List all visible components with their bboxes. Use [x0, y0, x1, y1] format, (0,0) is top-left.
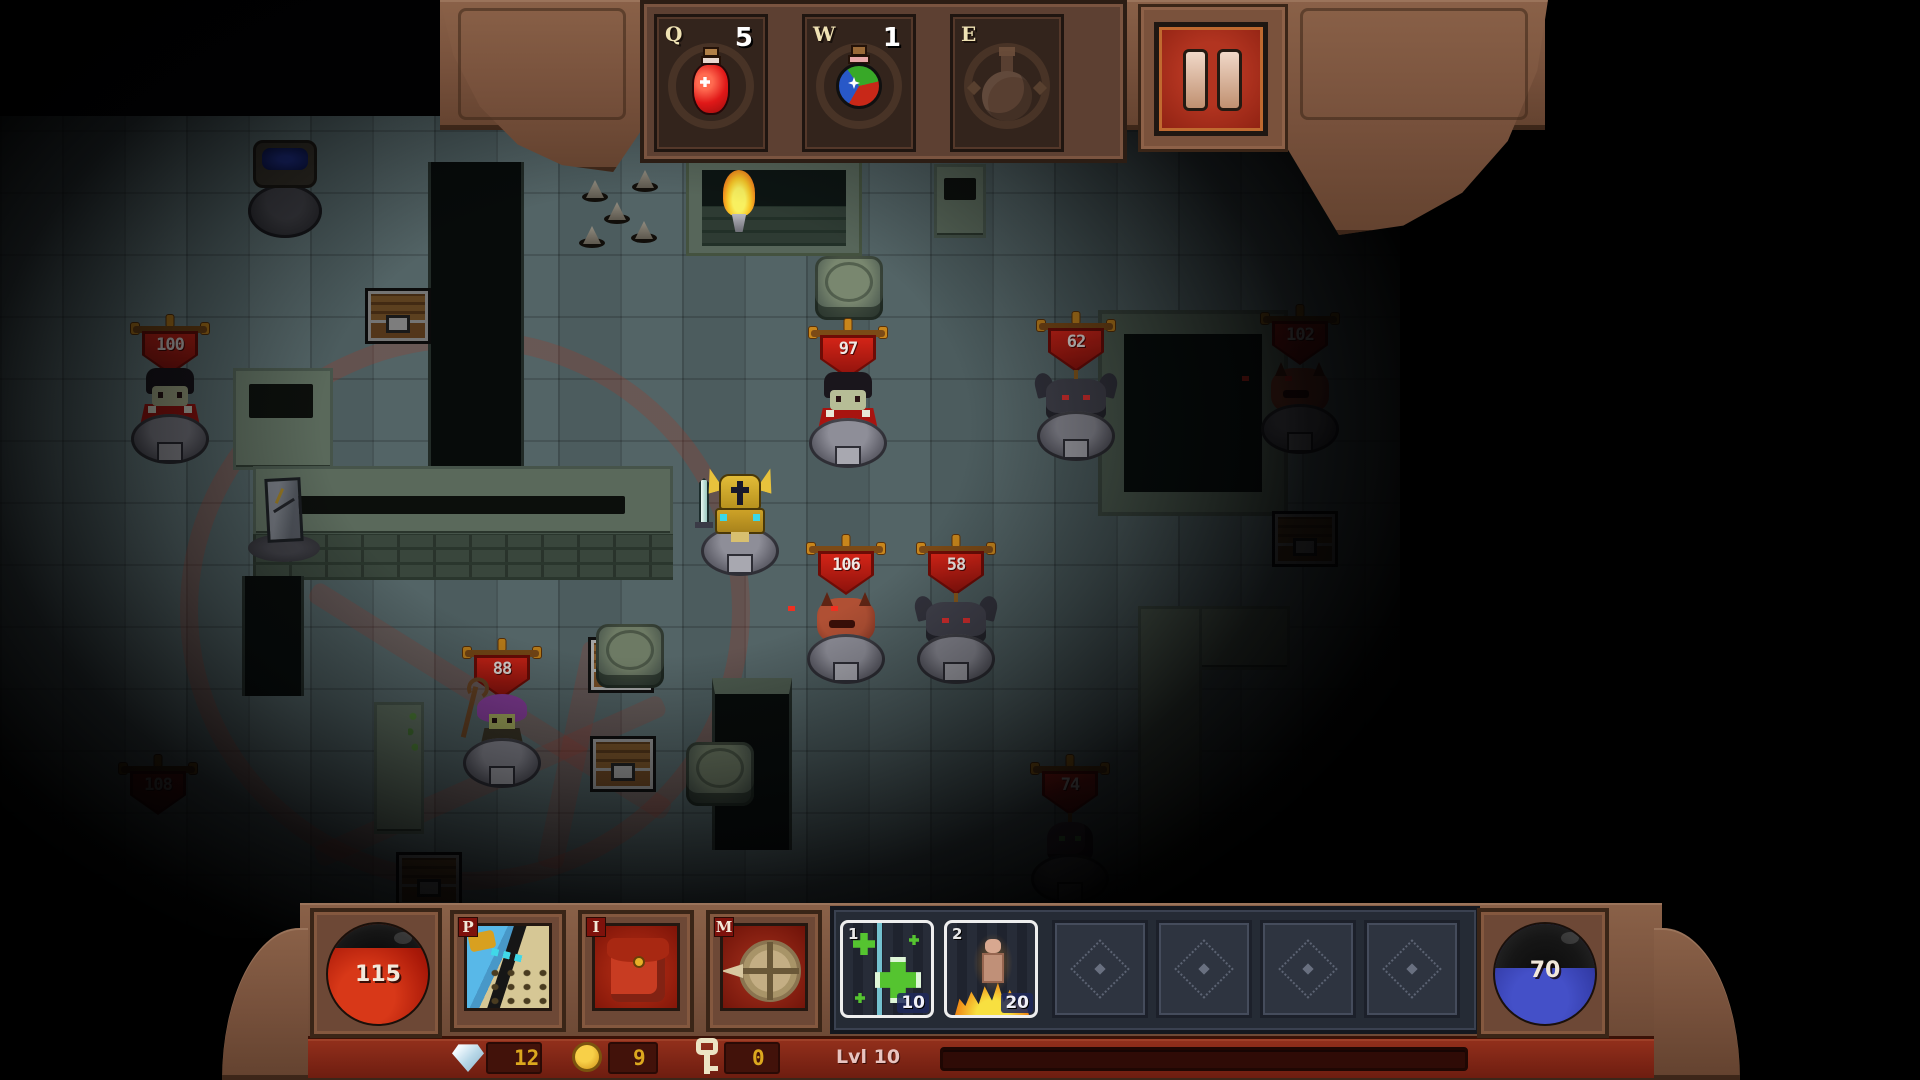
enemy-hp-value: 100 [142, 335, 198, 355]
potion-slot-q[interactable]: Q 5 [654, 14, 768, 152]
enemy-hp-value: 88 [474, 659, 530, 679]
bottom-bar-left-ornament [222, 928, 308, 1080]
chest[interactable] [1272, 511, 1338, 567]
enemy-hp-value: 102 [1272, 325, 1328, 345]
key-icon [694, 1038, 720, 1076]
potion-slot-w[interactable]: W 1 [802, 14, 916, 152]
wall-bottomright-vert [1138, 606, 1202, 911]
potion-panel: Q 5 W 1 E [640, 0, 1127, 163]
level-label: Lvl 10 [836, 1046, 900, 1068]
skill-cost: 20 [1001, 993, 1033, 1013]
coin-icon [572, 1042, 602, 1072]
enemy-imp[interactable]: 74 [1030, 758, 1110, 908]
enemy-vampire[interactable]: 100 [130, 318, 210, 468]
stone-pillar [596, 624, 664, 688]
coin-count: 9 [633, 1044, 646, 1072]
enemy-hp-value: 58 [928, 555, 984, 575]
potion-count: 5 [735, 23, 753, 53]
player-armor [715, 508, 765, 534]
sword-guard [695, 522, 713, 528]
potion-slot-e[interactable]: E [950, 14, 1064, 152]
skill-slot-empty[interactable] [1260, 920, 1356, 1018]
hotkey-label: Q [665, 22, 682, 46]
player-skirt [731, 532, 749, 542]
player-helmet [719, 474, 761, 510]
hp-banner: 106 [809, 538, 883, 594]
chest[interactable] [590, 736, 656, 792]
hotkey-badge: P [458, 917, 478, 937]
enemy-demon[interactable]: 102 [1260, 308, 1340, 458]
pit-bottom-left [242, 576, 304, 696]
enemy-hp-value: 62 [1048, 332, 1104, 352]
chest[interactable] [365, 288, 431, 344]
enemy-hp-value: 74 [1042, 775, 1098, 795]
hp-banner: 97 [811, 322, 885, 378]
menu-slot-character[interactable]: P [450, 910, 566, 1032]
wall-small-topright [934, 164, 986, 238]
menu-slot-inventory[interactable]: I [578, 910, 694, 1032]
coin-count-plate: 9 [608, 1042, 658, 1074]
hotkey-label: 1 [848, 925, 858, 943]
enemy-demon[interactable]: 106 [806, 538, 886, 688]
health-value: 115 [328, 962, 428, 987]
game-screen: 100 97 62 102 106 58 88 7 [0, 0, 1920, 1080]
tricolor-potion-icon [836, 45, 882, 123]
hp-banner: 58 [919, 538, 993, 594]
enemy-witch[interactable]: 88 [462, 642, 542, 792]
skill-slot-heal[interactable]: 1 10 [840, 920, 934, 1018]
wall-near-witch [374, 702, 424, 834]
player-knight[interactable] [697, 468, 783, 578]
gem-count-plate: 12 [486, 1042, 542, 1074]
hotkey-label: 2 [952, 925, 962, 943]
skill-slot-empty[interactable] [1156, 920, 1252, 1018]
top-bar-carving [1300, 8, 1528, 120]
hp-banner: 74 [1033, 758, 1107, 814]
heal-beam [877, 923, 882, 1015]
top-bar-carving [458, 8, 626, 120]
stone-pillar [686, 742, 754, 806]
gem-count: 12 [514, 1044, 539, 1072]
stone-pillar [815, 256, 883, 320]
skill-slot-empty[interactable] [1364, 920, 1460, 1018]
enemy-vampire[interactable]: 97 [808, 322, 888, 472]
health-potion-icon [692, 47, 730, 123]
heal-sparkle-icon [855, 993, 865, 1003]
spike-trap [631, 219, 657, 243]
key-count: 0 [752, 1044, 765, 1072]
torch-icon [722, 170, 756, 242]
spike-trap [582, 178, 608, 202]
xp-bar [940, 1047, 1468, 1071]
enemy-hidden[interactable]: 108 [118, 758, 198, 908]
spike-trap [579, 224, 605, 248]
enemy-gargoyle[interactable]: 58 [916, 538, 996, 688]
sword-icon [699, 478, 709, 526]
monolith[interactable] [248, 478, 320, 562]
enemy-hp-value: 106 [818, 555, 874, 575]
immolate-skill-icon [982, 953, 1004, 983]
spike-trap [604, 200, 630, 224]
pause-button[interactable] [1154, 22, 1268, 136]
pause-icon [1217, 49, 1242, 111]
potion-count: 1 [883, 23, 901, 53]
key-count-plate: 0 [724, 1042, 780, 1074]
health-orb: 115 [326, 922, 430, 1026]
torch-alcove [686, 158, 862, 256]
heal-sparkle-icon [909, 935, 919, 945]
skill-slot-immolate[interactable]: 2 20 [944, 920, 1038, 1018]
skill-cost: 10 [897, 993, 929, 1013]
hp-banner: 62 [1039, 315, 1113, 371]
hp-banner: 102 [1263, 308, 1337, 364]
spike-trap [632, 168, 658, 192]
enemy-hp-value: 97 [820, 339, 876, 359]
menu-slot-map[interactable]: M [706, 910, 822, 1032]
hotkey-label: W [813, 22, 835, 46]
hp-banner: 100 [133, 318, 207, 374]
mana-orb-panel: 70 [1477, 908, 1609, 1038]
hotkey-badge: M [714, 917, 734, 937]
hp-banner: 108 [121, 758, 195, 814]
hotkey-label: E [961, 22, 976, 46]
health-orb-panel: 115 [310, 908, 442, 1038]
enemy-hp-value: 108 [130, 775, 186, 795]
mana-value: 70 [1495, 958, 1595, 983]
pause-icon [1183, 49, 1208, 111]
immolate-skill-icon [985, 939, 1001, 953]
wall-left-stub [233, 368, 333, 470]
hotkey-badge: I [586, 917, 606, 937]
empty-flask-icon [982, 47, 1032, 131]
bottom-hud: 115 P I M 1 [0, 900, 1920, 1080]
skill-slot-empty[interactable] [1052, 920, 1148, 1018]
mana-orb: 70 [1493, 922, 1597, 1026]
enemy-gargoyle[interactable]: 62 [1036, 315, 1116, 465]
fountain[interactable] [248, 140, 322, 238]
bottom-bar-right-ornament [1654, 928, 1740, 1080]
